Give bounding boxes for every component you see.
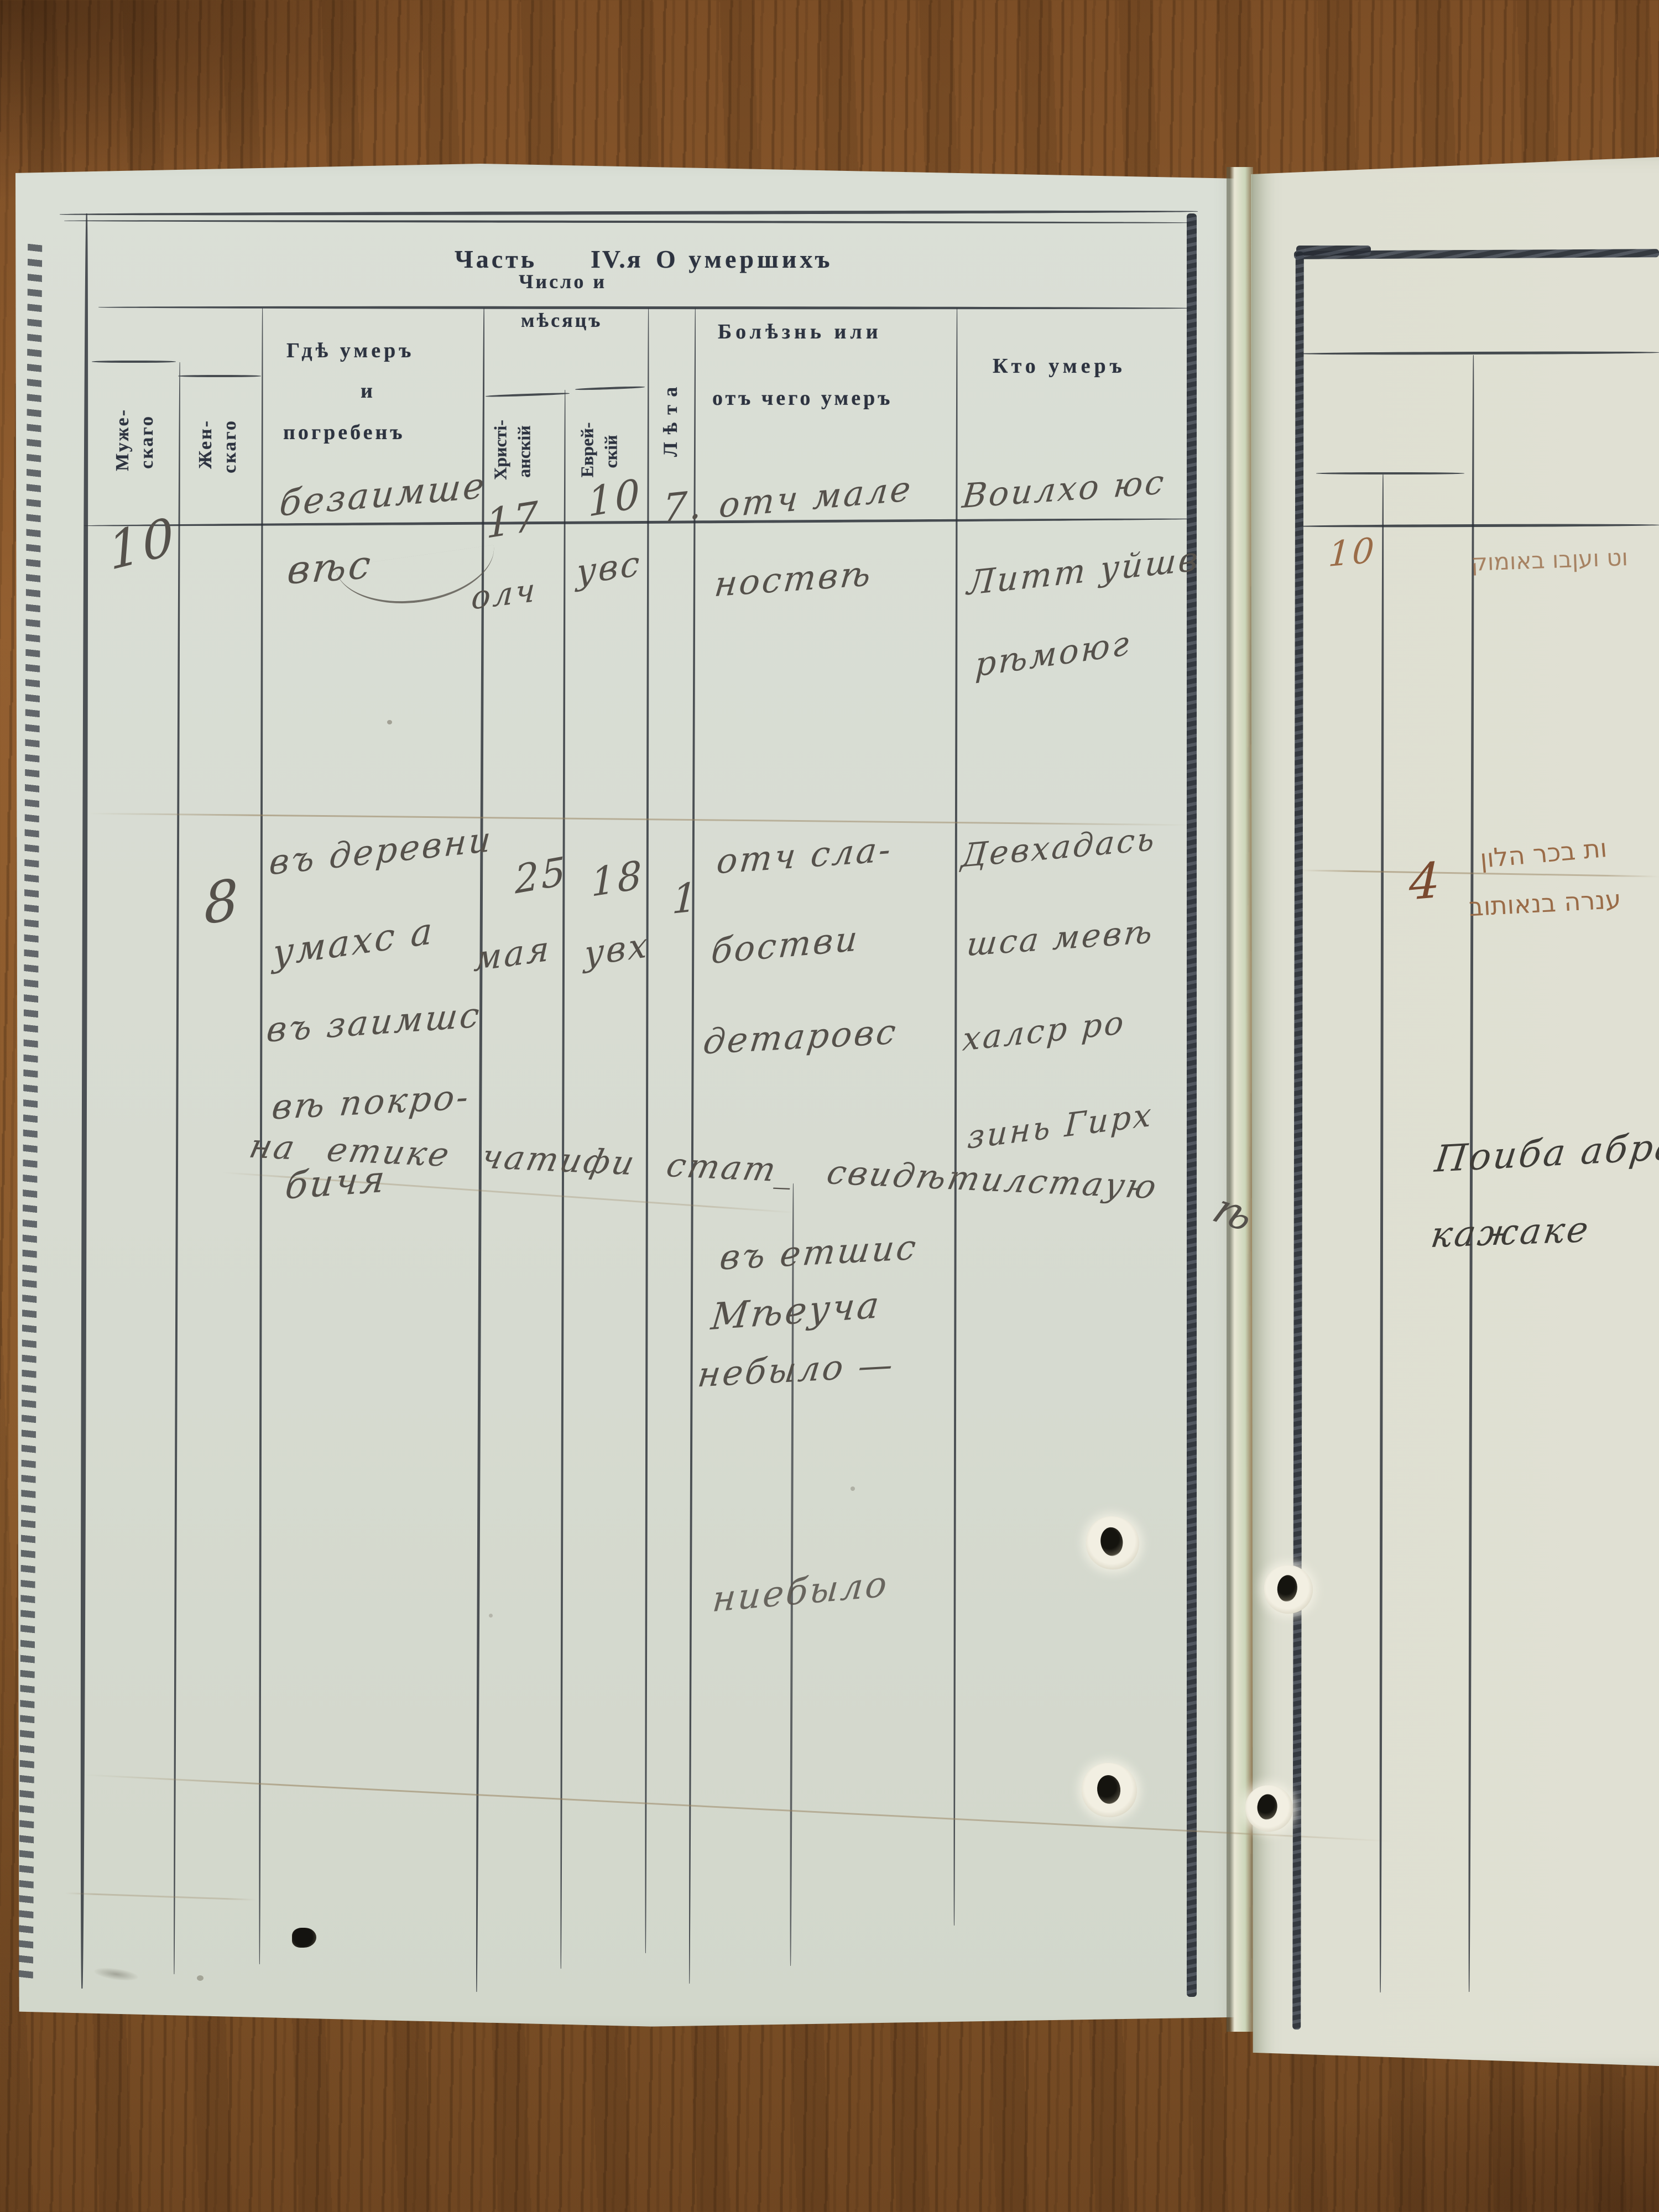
- col-header-where: погребенъ: [283, 420, 405, 445]
- right-entry-hebrew: וט ועןבו באומוק: [1470, 544, 1628, 576]
- punch-hole-shadow: [1256, 1793, 1279, 1821]
- right-page: [1251, 157, 1659, 2066]
- paper-speck: [489, 1614, 493, 1618]
- col-header-christian: Христі-: [491, 389, 511, 511]
- col-header-female: Жен-: [195, 383, 216, 505]
- entry-age: 7.: [662, 482, 705, 532]
- female-header-top-rule: [178, 375, 261, 377]
- punch-hole-shadow: [1099, 1526, 1124, 1557]
- entry-jewish-day: 10: [587, 469, 643, 526]
- right-table-subrule: [1316, 472, 1464, 474]
- col-header-age: Лѣта: [659, 346, 682, 490]
- page-gutter-edge: [1227, 167, 1253, 2032]
- right-entry-number: 4: [1408, 851, 1443, 911]
- col-header-date-group: Число и: [519, 270, 607, 293]
- page-title-part: О умершихъ: [656, 244, 833, 274]
- col-header-where: Гдѣ умеръ: [286, 338, 414, 363]
- entry-christian-day: 25: [514, 848, 568, 903]
- col-header-male: Муже-: [112, 379, 133, 500]
- col-header-who: Кто умеръ: [993, 354, 1126, 378]
- entry-jewish-day: 18: [591, 852, 644, 906]
- paper-speck: [387, 720, 392, 724]
- male-header-top-rule: [92, 361, 176, 363]
- col-header-where: и: [361, 379, 373, 403]
- col-header-disease: отъ чего умеръ: [712, 386, 893, 410]
- punch-hole-shadow: [1276, 1574, 1298, 1603]
- col-header-male: скаго: [137, 381, 158, 503]
- entry-christian-day: 17: [486, 492, 541, 547]
- table-right-border: [1187, 213, 1197, 1997]
- right-page-note: кажаке: [1428, 1209, 1593, 1256]
- col-header-disease: Болѣзнь или: [718, 320, 882, 344]
- col-header-date-group: мѣсяцъ: [521, 309, 602, 332]
- right-entry-number: 10: [1327, 530, 1377, 575]
- paper-speck: [851, 1486, 855, 1491]
- paper-speck: [197, 1975, 204, 1981]
- punch-hole-shadow: [1095, 1774, 1121, 1805]
- entry-age: 1: [671, 873, 701, 923]
- photo-of-metric-book: { "document": { "title": { "part1": "Час…: [0, 0, 1659, 2212]
- entry-female-count: 8: [202, 866, 242, 938]
- col-header-female: скаго: [220, 385, 241, 507]
- right-table-top-border-blob: [1296, 246, 1371, 255]
